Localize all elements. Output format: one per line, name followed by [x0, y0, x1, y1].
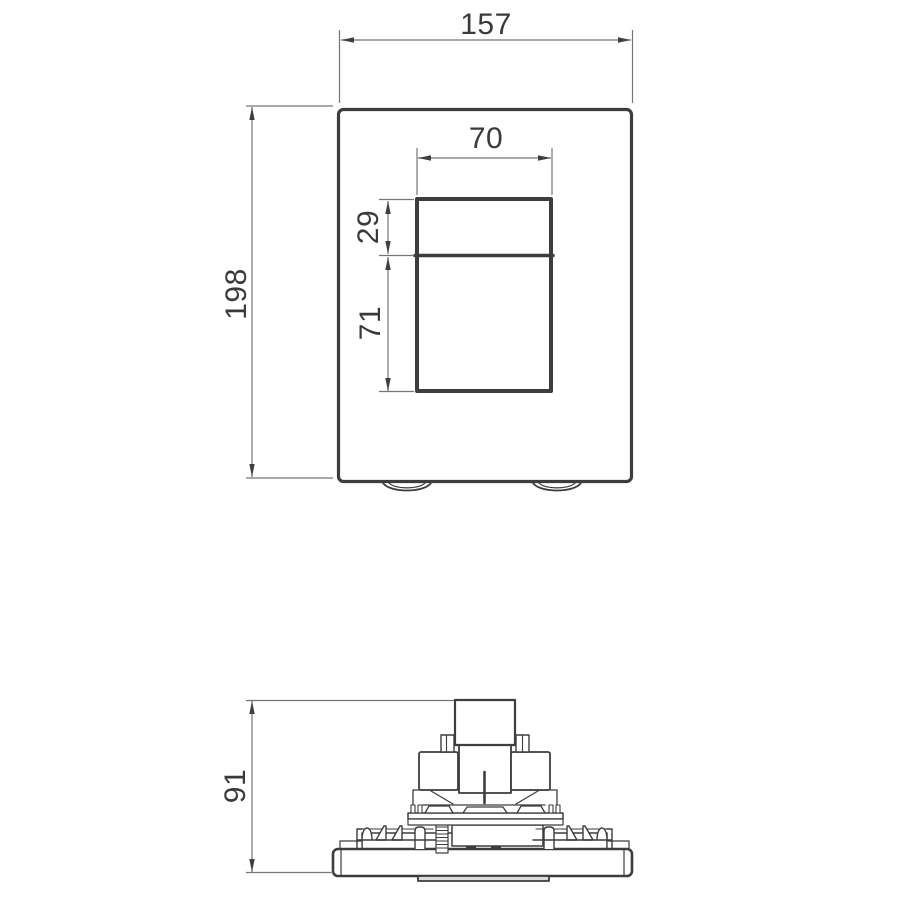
front-view	[339, 110, 632, 491]
dimension-lines	[246, 30, 633, 873]
bottom-mount-bumps	[383, 483, 581, 491]
dim-label-overall-width: 157	[460, 10, 512, 40]
dim-70	[417, 148, 552, 195]
dim-label-button-width: 70	[469, 124, 503, 154]
technical-drawing-canvas: 157 198 70 29 71 91	[0, 0, 900, 900]
dim-label-overall-height: 198	[222, 268, 252, 320]
left-tab	[441, 735, 454, 752]
right-side-block	[511, 752, 550, 790]
center-box	[452, 825, 543, 846]
top-block	[455, 700, 515, 745]
base-plate-profile	[333, 849, 632, 881]
dim-label-overall-depth: 91	[221, 769, 251, 803]
dim-198	[246, 106, 333, 478]
mechanism-blocks	[419, 700, 550, 803]
housing-feet	[425, 806, 545, 813]
drawing-svg	[0, 0, 900, 900]
plate-bottom-lip	[418, 876, 549, 881]
cover-plate-outline	[339, 110, 632, 482]
button-opening-outline	[417, 199, 551, 391]
dim-label-lower-button-height: 71	[356, 306, 386, 340]
side-view	[333, 700, 632, 881]
dimension-arrowheads	[249, 37, 631, 872]
dim-label-upper-button-height: 29	[354, 210, 384, 244]
left-side-block	[419, 752, 458, 790]
